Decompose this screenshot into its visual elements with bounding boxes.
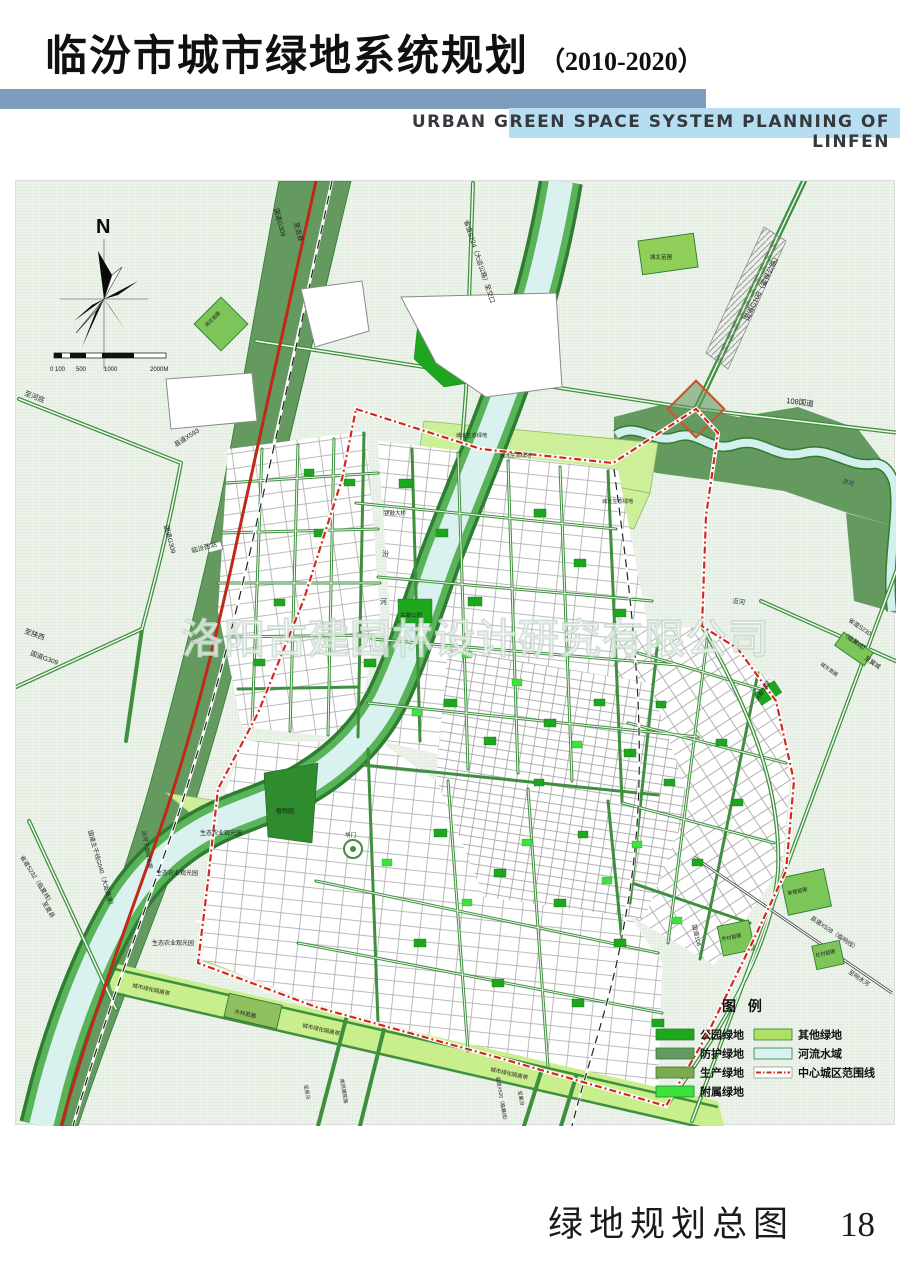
legend-swatch [754,1048,792,1059]
scale-label: 0 100 [50,367,66,373]
legend-swatch [754,1029,792,1040]
map-label: 城北苗圃 [650,253,673,261]
map-label: 县道X593 [172,426,201,449]
scale-bar: 0 10050010002000M [50,353,168,373]
title-chinese: 临汾市城市绿地系统规划 [45,34,529,80]
title-year: （2010-2020） [539,47,704,76]
legend-label: 生产绿地 [700,1066,744,1080]
legend-label: 防护绿地 [700,1047,744,1061]
legend-label: 公园绿地 [700,1028,744,1042]
hatched-zone [706,227,786,369]
map-label: 至侯马 [302,1084,312,1100]
scale-label: 500 [76,367,87,373]
map-label: 城东苗圃 [819,661,839,678]
map-label: 华门 [345,831,356,839]
compass-n-label: N [96,216,110,238]
page: 临汾市城市绿地系统规划（2010-2020） URBAN GREEN SPACE… [0,0,900,1273]
header-bar-dark [0,89,706,109]
botanical-garden [264,763,318,843]
map-label: 南同蒲铁路 [338,1078,349,1104]
huamen-plaza [344,840,362,858]
map-label: 生态农业观光园 [200,829,242,837]
scale-label: 1000 [104,367,118,373]
legend-label: 附属绿地 [700,1085,744,1099]
map-label: 国道G309 [29,648,60,666]
map-panel: N 0 10050010002000M 图 例 公园绿地防护绿地生产绿地附属绿地… [15,180,895,1125]
compass: N [60,216,148,369]
map-label: 生态农业观光园 [152,939,194,947]
map-label: 城北生态绿地 [500,451,531,459]
map-label: 省道S230 [847,616,873,638]
legend-swatch [656,1086,694,1097]
map-label: 至襄汾 [516,1090,526,1106]
legend-label: 中心城区范围线 [798,1066,875,1080]
map-label: 城北生态绿地 [456,431,487,439]
map-svg: N 0 10050010002000M 图 例 公园绿地防护绿地生产绿地附属绿地… [16,181,896,1126]
map-label: 洰河 [732,597,746,607]
footer: 绿地规划总图18 [0,1196,875,1247]
map-label: 锣鼓大桥 [384,509,407,517]
map-label: 生态农业观光园 [156,869,198,877]
legend-swatch [656,1067,694,1078]
legend: 图 例 公园绿地防护绿地生产绿地附属绿地其他绿地河流水域中心城区范围线 [656,998,875,1099]
map-label: 河 [380,598,387,606]
legend-title: 图 例 [722,998,766,1014]
map-label: 至陕西 [23,626,46,642]
title-english: URBAN GREEN SPACE SYSTEM PLANNING OF LIN… [380,112,898,152]
map-label: 国道主干线G040（大运高速） [86,829,116,909]
legend-swatch [656,1029,694,1040]
page-title: 临汾市城市绿地系统规划（2010-2020） [45,22,704,83]
footer-caption: 绿地规划总图 [548,1205,794,1244]
map-label: 城北生态绿地 [602,497,633,505]
legend-label: 其他绿地 [798,1028,842,1042]
map-label: 108国道 [786,395,815,408]
legend-label: 河流水域 [798,1047,842,1061]
scale-label: 2000M [150,367,168,373]
watermark: 洛阳古建园林设计研究有限公司 [182,616,770,662]
legend-swatch [656,1048,694,1059]
footer-page-number: 18 [840,1205,875,1244]
map-label: 植物园 [276,807,294,815]
map-label: 汾 [382,549,389,558]
